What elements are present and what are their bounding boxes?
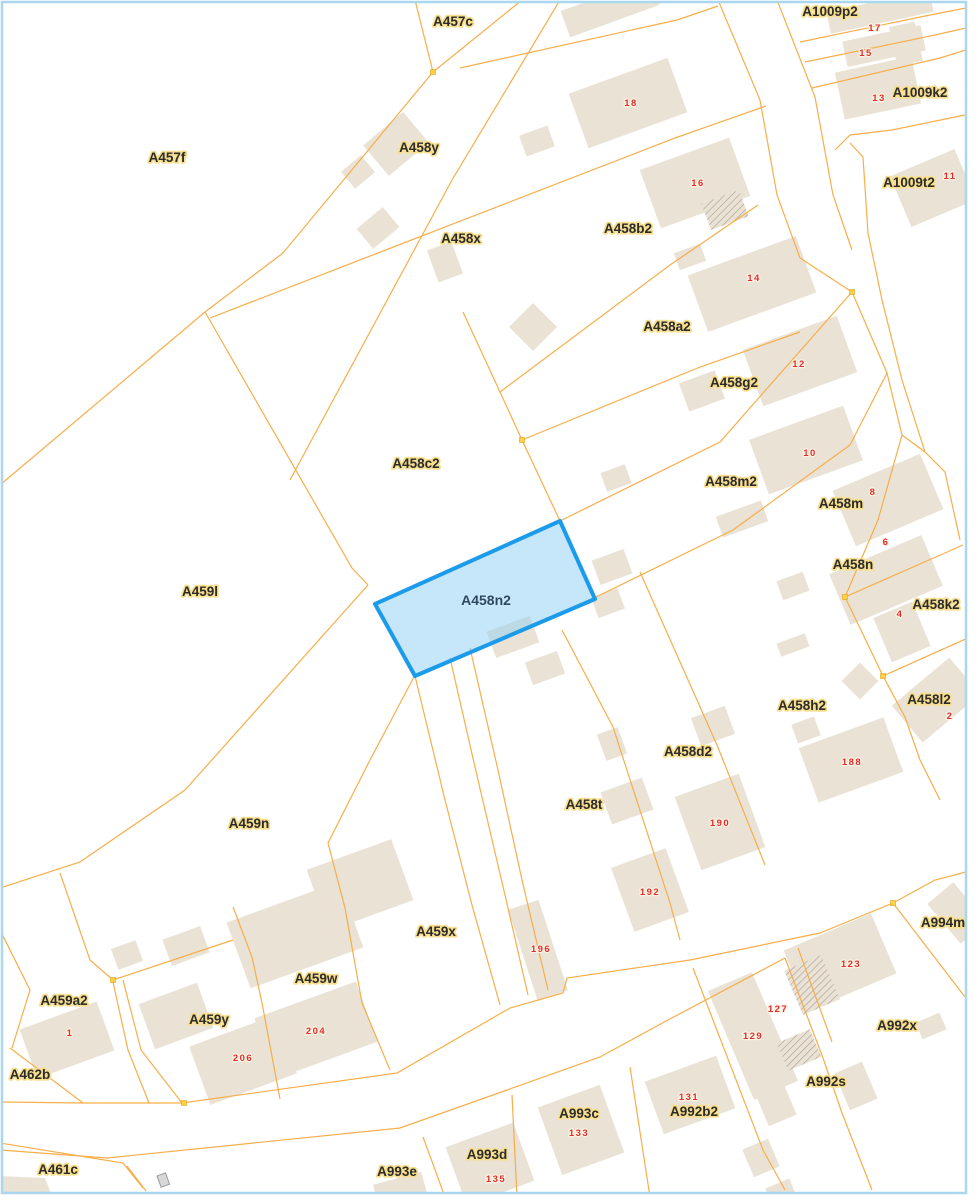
boundary-node bbox=[111, 978, 116, 983]
boundary-node bbox=[843, 595, 848, 600]
parcel-label-A992b2[interactable]: A992b2 bbox=[670, 1104, 718, 1119]
house-number-label: 129 bbox=[743, 1031, 763, 1042]
house-number-label: 10 bbox=[803, 448, 817, 459]
house-number-label: 131 bbox=[679, 1092, 699, 1103]
parcel-label-A993c[interactable]: A993c bbox=[559, 1106, 599, 1121]
boundary-node bbox=[431, 70, 436, 75]
parcel-label-A461c[interactable]: A461c bbox=[38, 1162, 78, 1177]
house-number-label: 133 bbox=[569, 1128, 589, 1139]
parcel-label-A458x[interactable]: A458x bbox=[441, 231, 481, 246]
parcel-label-A992s[interactable]: A992s bbox=[806, 1074, 846, 1089]
house-number-label: 14 bbox=[747, 273, 761, 284]
house-number-label: 16 bbox=[691, 178, 705, 189]
house-number-label: 188 bbox=[842, 757, 862, 768]
parcel-label-A458t[interactable]: A458t bbox=[566, 797, 603, 812]
parcel-label-A1009p2[interactable]: A1009p2 bbox=[802, 4, 858, 19]
house-number-label: 204 bbox=[306, 1026, 326, 1037]
parcel-label-A459w[interactable]: A459w bbox=[295, 971, 338, 986]
parcel-label-A994m[interactable]: A994m bbox=[921, 915, 965, 930]
parcel-label-A459l[interactable]: A459l bbox=[182, 584, 218, 599]
house-number-label: 8 bbox=[870, 487, 877, 498]
boundary-node bbox=[520, 438, 525, 443]
map-canvas[interactable]: A458n2A457cA1009p2A457fA458yA1009k2A1009… bbox=[0, 0, 978, 1200]
boundary-node bbox=[850, 290, 855, 295]
highlighted-parcel-label[interactable]: A458n2 bbox=[461, 592, 511, 608]
parcel-label-A458l2[interactable]: A458l2 bbox=[907, 692, 951, 707]
parcel-label-A1009t2[interactable]: A1009t2 bbox=[883, 175, 935, 190]
parcel-label-A458g2[interactable]: A458g2 bbox=[710, 375, 758, 390]
parcel-label-A992x[interactable]: A992x bbox=[877, 1018, 917, 1033]
house-number-label: 135 bbox=[486, 1174, 506, 1185]
parcel-label-A459y[interactable]: A459y bbox=[189, 1012, 229, 1027]
house-number-label: 15 bbox=[859, 48, 873, 59]
house-number-label: 18 bbox=[624, 98, 638, 109]
parcel-label-A462b[interactable]: A462b bbox=[10, 1067, 51, 1082]
parcel-label-A458a2[interactable]: A458a2 bbox=[643, 319, 690, 334]
boundary-node bbox=[891, 901, 896, 906]
house-number-label: 192 bbox=[640, 887, 660, 898]
parcel-label-A458b2[interactable]: A458b2 bbox=[604, 221, 652, 236]
parcel-label-A458m[interactable]: A458m bbox=[819, 496, 863, 511]
parcel-label-A458k2[interactable]: A458k2 bbox=[912, 597, 959, 612]
parcel-label-A459x[interactable]: A459x bbox=[416, 924, 456, 939]
house-number-label: 127 bbox=[768, 1004, 788, 1015]
parcel-label-A458h2[interactable]: A458h2 bbox=[778, 698, 826, 713]
parcel-label-A458c2[interactable]: A458c2 bbox=[392, 456, 439, 471]
parcel-label-A457c[interactable]: A457c bbox=[433, 14, 473, 29]
parcel-label-A458y[interactable]: A458y bbox=[399, 140, 439, 155]
house-number-label: 196 bbox=[531, 944, 551, 955]
house-number-label: 190 bbox=[710, 818, 730, 829]
house-number-label: 17 bbox=[868, 23, 882, 34]
boundary-node bbox=[881, 674, 886, 679]
parcel-label-A459n[interactable]: A459n bbox=[229, 816, 270, 831]
cadastral-map[interactable]: A458n2A457cA1009p2A457fA458yA1009k2A1009… bbox=[0, 0, 978, 1200]
house-number-label: 12 bbox=[792, 359, 806, 370]
house-number-label: 11 bbox=[943, 171, 956, 182]
parcel-label-A458n[interactable]: A458n bbox=[833, 557, 874, 572]
parcel-label-A459a2[interactable]: A459a2 bbox=[40, 993, 87, 1008]
parcel-label-A458m2[interactable]: A458m2 bbox=[705, 474, 757, 489]
house-number-label: 123 bbox=[841, 959, 861, 970]
parcel-label-A993d[interactable]: A993d bbox=[467, 1147, 508, 1162]
house-number-label: 13 bbox=[872, 93, 886, 104]
house-number-label: 206 bbox=[233, 1053, 253, 1064]
house-number-label: 4 bbox=[897, 609, 904, 620]
parcel-label-A457f[interactable]: A457f bbox=[149, 150, 186, 165]
boundary-node bbox=[182, 1101, 187, 1106]
parcel-label-A1009k2[interactable]: A1009k2 bbox=[893, 85, 948, 100]
house-number-label: 1 bbox=[67, 1028, 74, 1039]
house-number-label: 2 bbox=[947, 711, 954, 722]
parcel-label-A458d2[interactable]: A458d2 bbox=[664, 744, 712, 759]
house-number-label: 6 bbox=[883, 537, 890, 548]
parcel-label-A993e[interactable]: A993e bbox=[377, 1164, 417, 1179]
